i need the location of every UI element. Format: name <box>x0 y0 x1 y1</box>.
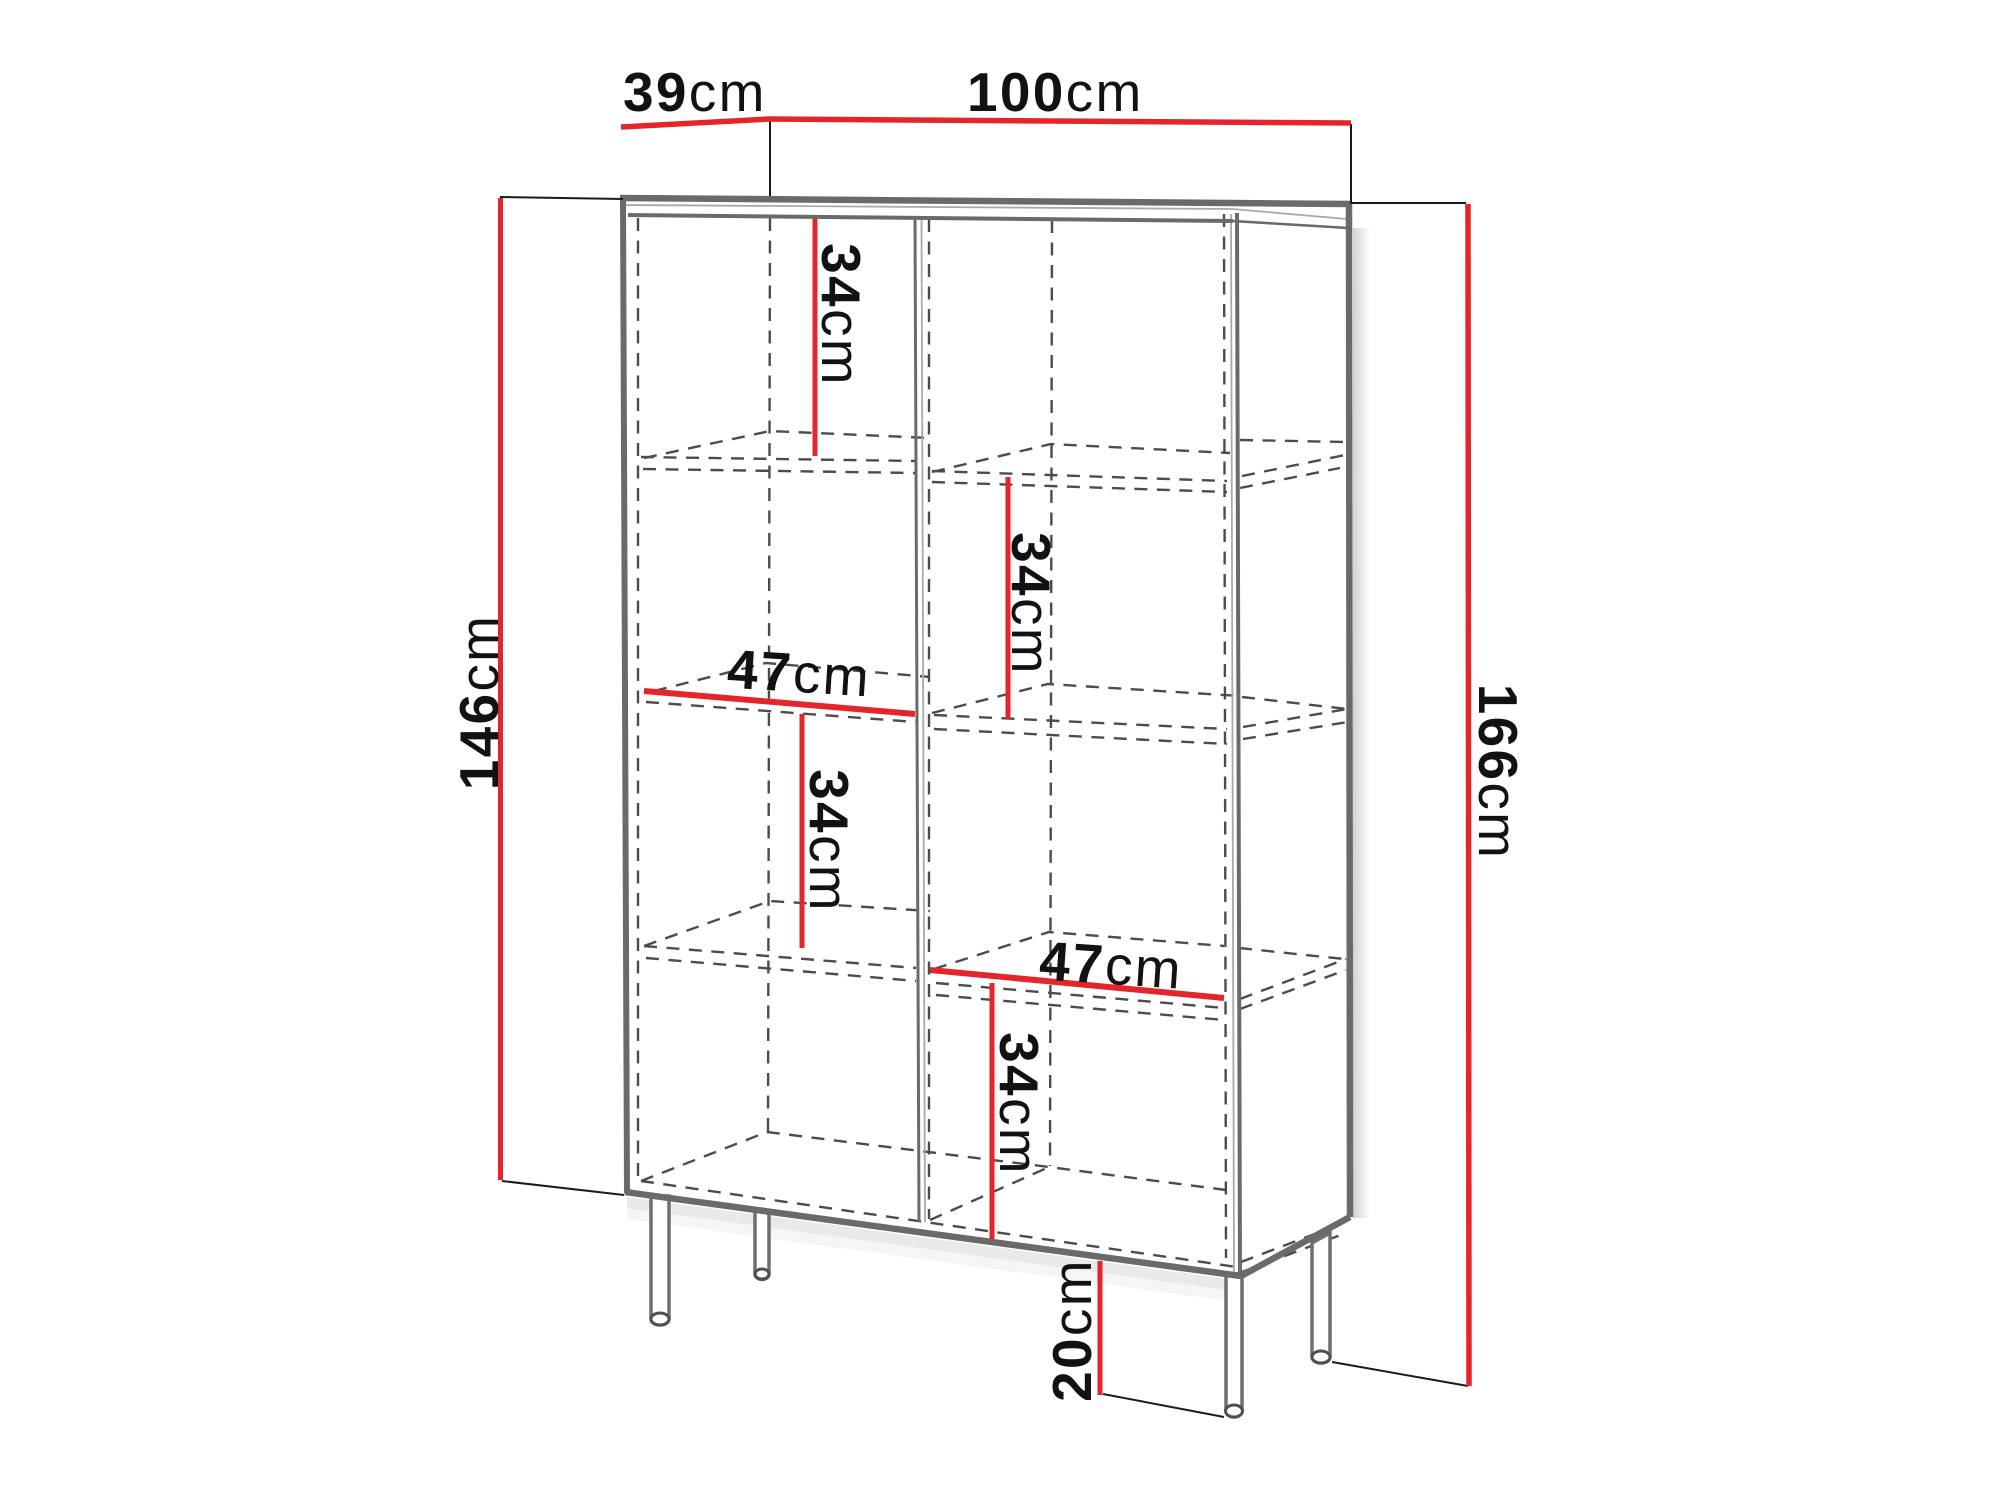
svg-text:34cm: 34cm <box>810 243 872 387</box>
svg-text:146cm: 146cm <box>448 614 510 791</box>
svg-text:34cm: 34cm <box>798 769 860 913</box>
svg-text:47cm: 47cm <box>726 638 873 709</box>
svg-text:34cm: 34cm <box>988 1032 1050 1176</box>
svg-text:39cm: 39cm <box>623 61 767 123</box>
svg-text:166cm: 166cm <box>1467 684 1529 861</box>
svg-text:47cm: 47cm <box>1038 929 1185 1000</box>
svg-text:20cm: 20cm <box>1041 1258 1103 1402</box>
svg-text:100cm: 100cm <box>967 61 1144 123</box>
svg-text:34cm: 34cm <box>1000 532 1062 676</box>
